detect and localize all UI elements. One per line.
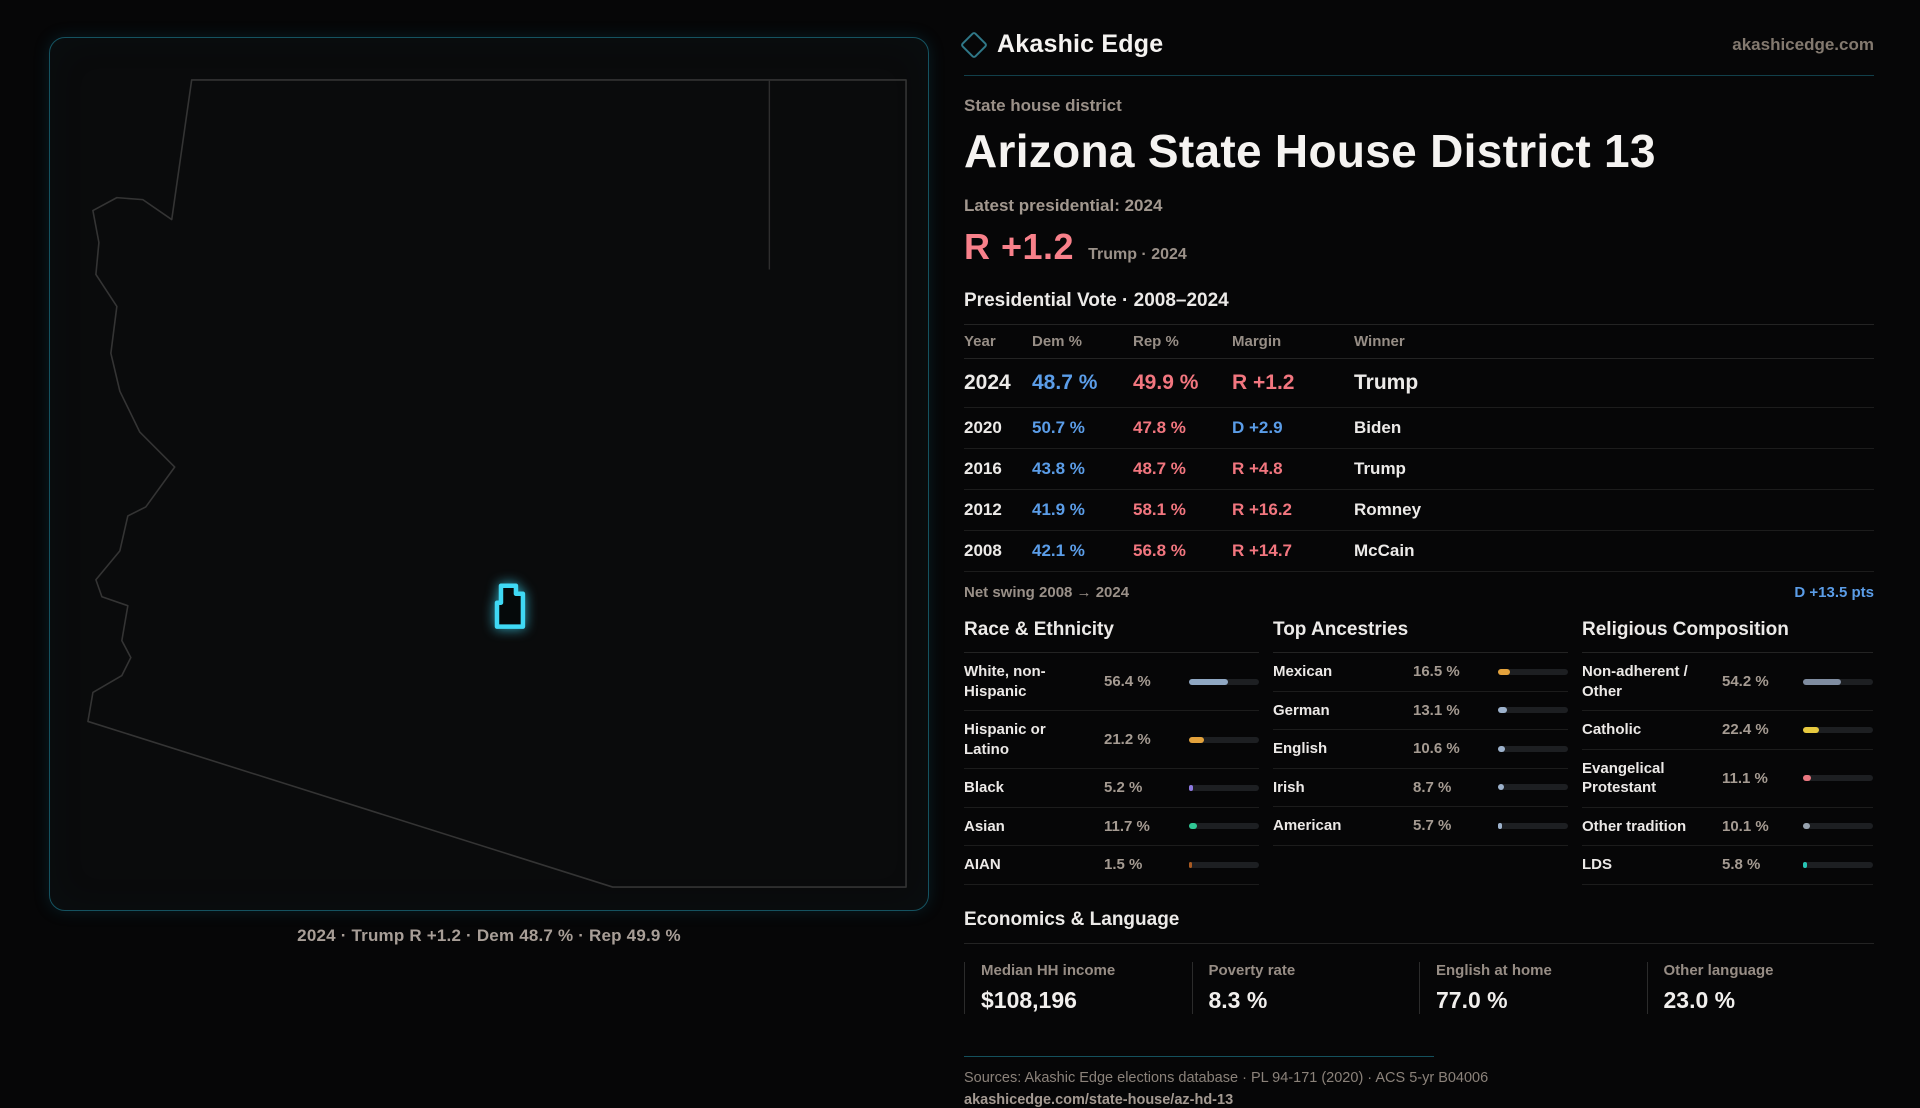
col-rep: Rep % (1133, 333, 1232, 350)
presidential-vote-table: Year Dem % Rep % Margin Winner 2024 48.7… (964, 324, 1874, 572)
stat-value: 8.3 % (1209, 987, 1420, 1014)
demo-bar (1803, 823, 1873, 829)
district-type-label: State house district (964, 96, 1874, 116)
demo-label: Other tradition (1582, 817, 1710, 837)
rep-cell: 49.9 % (1133, 371, 1232, 395)
arizona-state-outline (88, 80, 906, 887)
stat-label: Median HH income (981, 962, 1192, 979)
demo-value: 54.2 % (1722, 673, 1791, 690)
economics-section: Economics & Language Median HH income $1… (964, 909, 1874, 1014)
winner-cell: Trump (1354, 459, 1874, 479)
margin-cell: D +2.9 (1232, 418, 1354, 438)
permalink[interactable]: akashicedge.com/state-house/az-hd-13 (964, 1092, 1874, 1108)
stat-english-at-home: English at home 77.0 % (1419, 962, 1647, 1014)
demo-bar (1803, 679, 1873, 685)
section-title: Race & Ethnicity (964, 619, 1259, 653)
demo-value: 8.7 % (1413, 779, 1486, 796)
demo-bar (1189, 737, 1259, 743)
sources-text: Sources: Akashic Edge elections database… (964, 1070, 1874, 1086)
demo-label: Evangelical Protestant (1582, 759, 1710, 798)
section-title: Top Ancestries (1273, 619, 1568, 653)
year-cell: 2016 (964, 459, 1032, 479)
winner-cell: McCain (1354, 541, 1874, 561)
demo-bar (1498, 707, 1568, 713)
winner-cell: Trump (1354, 371, 1874, 395)
demo-bar (1803, 727, 1873, 733)
margin-cell: R +16.2 (1232, 500, 1354, 520)
demo-bar (1498, 746, 1568, 752)
demo-value: 22.4 % (1722, 721, 1791, 738)
stat-poverty-rate: Poverty rate 8.3 % (1192, 962, 1420, 1014)
demo-label: Catholic (1582, 720, 1710, 740)
winner-cell: Romney (1354, 500, 1874, 520)
district-map-panel (49, 37, 929, 911)
col-dem: Dem % (1032, 333, 1133, 350)
rep-cell: 56.8 % (1133, 541, 1232, 561)
demo-label: Mexican (1273, 662, 1401, 682)
rep-cell: 58.1 % (1133, 500, 1232, 520)
site-url-link[interactable]: akashicedge.com (1732, 35, 1874, 55)
year-cell: 2008 (964, 541, 1032, 561)
table-row: 2008 42.1 % 56.8 % R +14.7 McCain (964, 531, 1874, 572)
demo-value: 5.2 % (1104, 779, 1177, 796)
stat-value: $108,196 (981, 987, 1192, 1014)
table-header-row: Year Dem % Rep % Margin Winner (964, 324, 1874, 359)
race-ethnicity-column: Race & Ethnicity White, non-Hispanic 56.… (964, 619, 1259, 885)
demo-bar (1189, 785, 1259, 791)
dem-cell: 43.8 % (1032, 459, 1133, 479)
demographics-section: Race & Ethnicity White, non-Hispanic 56.… (964, 619, 1874, 885)
demo-row: Mexican 16.5 % (1273, 653, 1568, 692)
demo-label: Non-adherent / Other (1582, 662, 1710, 701)
demo-value: 10.6 % (1413, 740, 1486, 757)
demo-label: Asian (964, 817, 1092, 837)
dem-cell: 41.9 % (1032, 500, 1133, 520)
stat-median-income: Median HH income $108,196 (964, 962, 1192, 1014)
demo-value: 56.4 % (1104, 673, 1177, 690)
page-footer: Sources: Akashic Edge elections database… (964, 1056, 1874, 1108)
demo-row: English 10.6 % (1273, 730, 1568, 769)
demo-row: Non-adherent / Other 54.2 % (1582, 653, 1873, 711)
demo-label: German (1273, 701, 1401, 721)
demo-bar (1189, 862, 1259, 868)
map-caption: 2024 · Trump R +1.2 · Dem 48.7 % · Rep 4… (49, 926, 929, 946)
demo-row: AIAN 1.5 % (964, 846, 1259, 885)
arizona-map (50, 38, 928, 910)
detail-panel: Akashic Edge akashicedge.com State house… (964, 30, 1874, 1108)
rep-cell: 47.8 % (1133, 418, 1232, 438)
religion-column: Religious Composition Non-adherent / Oth… (1582, 619, 1873, 885)
winner-cell: Biden (1354, 418, 1874, 438)
demo-value: 10.1 % (1722, 818, 1791, 835)
vote-table-title: Presidential Vote · 2008–2024 (964, 290, 1874, 312)
demo-row: Black 5.2 % (964, 769, 1259, 808)
district-shape[interactable] (497, 586, 523, 627)
demo-bar (1803, 862, 1873, 868)
section-title: Religious Composition (1582, 619, 1873, 653)
table-row: 2016 43.8 % 48.7 % R +4.8 Trump (964, 449, 1874, 490)
demo-row: American 5.7 % (1273, 807, 1568, 846)
dem-cell: 50.7 % (1032, 418, 1133, 438)
col-year: Year (964, 333, 1032, 350)
demo-label: Hispanic or Latino (964, 720, 1092, 759)
site-header: Akashic Edge akashicedge.com (964, 30, 1874, 76)
demo-value: 5.7 % (1413, 817, 1486, 834)
demo-value: 1.5 % (1104, 856, 1177, 873)
demo-label: White, non-Hispanic (964, 662, 1092, 701)
stat-value: 77.0 % (1436, 987, 1647, 1014)
net-swing-value: D +13.5 pts (1794, 584, 1874, 601)
demo-row: German 13.1 % (1273, 692, 1568, 731)
demo-row: White, non-Hispanic 56.4 % (964, 653, 1259, 711)
demo-value: 16.5 % (1413, 663, 1486, 680)
table-row: 2012 41.9 % 58.1 % R +16.2 Romney (964, 490, 1874, 531)
net-swing-label: Net swing 2008 → 2024 (964, 584, 1129, 601)
dem-cell: 48.7 % (1032, 371, 1133, 395)
stat-label: English at home (1436, 962, 1647, 979)
diamond-logo-icon (960, 30, 988, 58)
demo-bar (1189, 823, 1259, 829)
page-title: Arizona State House District 13 (964, 124, 1874, 178)
rep-cell: 48.7 % (1133, 459, 1232, 479)
demo-bar (1189, 679, 1259, 685)
col-winner: Winner (1354, 333, 1874, 350)
demo-bar (1498, 784, 1568, 790)
margin-cell: R +4.8 (1232, 459, 1354, 479)
stat-label: Other language (1664, 962, 1875, 979)
stat-label: Poverty rate (1209, 962, 1420, 979)
demo-value: 21.2 % (1104, 731, 1177, 748)
demo-row: Hispanic or Latino 21.2 % (964, 711, 1259, 769)
table-row: 2024 48.7 % 49.9 % R +1.2 Trump (964, 359, 1874, 408)
demo-row: Catholic 22.4 % (1582, 711, 1873, 750)
demo-label: AIAN (964, 855, 1092, 875)
demo-row: Irish 8.7 % (1273, 769, 1568, 808)
demo-row: Asian 11.7 % (964, 808, 1259, 847)
demo-value: 11.7 % (1104, 818, 1177, 835)
stat-value: 23.0 % (1664, 987, 1875, 1014)
headline-margin-context: Trump · 2024 (1088, 246, 1187, 264)
brand-name: Akashic Edge (997, 30, 1163, 59)
demo-label: Black (964, 778, 1092, 798)
margin-cell: R +14.7 (1232, 541, 1354, 561)
demo-bar (1498, 823, 1568, 829)
net-swing-row: Net swing 2008 → 2024 D +13.5 pts (964, 584, 1874, 601)
headline-margin: R +1.2 (964, 226, 1074, 268)
demo-label: Irish (1273, 778, 1401, 798)
demo-row: LDS 5.8 % (1582, 846, 1873, 885)
year-cell: 2020 (964, 418, 1032, 438)
margin-cell: R +1.2 (1232, 371, 1354, 395)
table-row: 2020 50.7 % 47.8 % D +2.9 Biden (964, 408, 1874, 449)
demo-bar (1803, 775, 1873, 781)
demo-value: 13.1 % (1413, 702, 1486, 719)
demo-value: 5.8 % (1722, 856, 1791, 873)
latest-presidential-label: Latest presidential: 2024 (964, 196, 1874, 216)
demo-bar (1498, 669, 1568, 675)
col-margin: Margin (1232, 333, 1354, 350)
demo-value: 11.1 % (1722, 770, 1791, 787)
ancestries-column: Top Ancestries Mexican 16.5 % German 13.… (1273, 619, 1568, 885)
demo-row: Evangelical Protestant 11.1 % (1582, 750, 1873, 808)
demo-label: LDS (1582, 855, 1710, 875)
footer-divider (964, 1056, 1434, 1057)
year-cell: 2024 (964, 371, 1032, 395)
economics-title: Economics & Language (964, 909, 1874, 944)
demo-label: English (1273, 739, 1401, 759)
stat-other-language: Other language 23.0 % (1647, 962, 1875, 1014)
demo-row: Other tradition 10.1 % (1582, 808, 1873, 847)
demo-label: American (1273, 816, 1401, 836)
year-cell: 2012 (964, 500, 1032, 520)
dem-cell: 42.1 % (1032, 541, 1133, 561)
